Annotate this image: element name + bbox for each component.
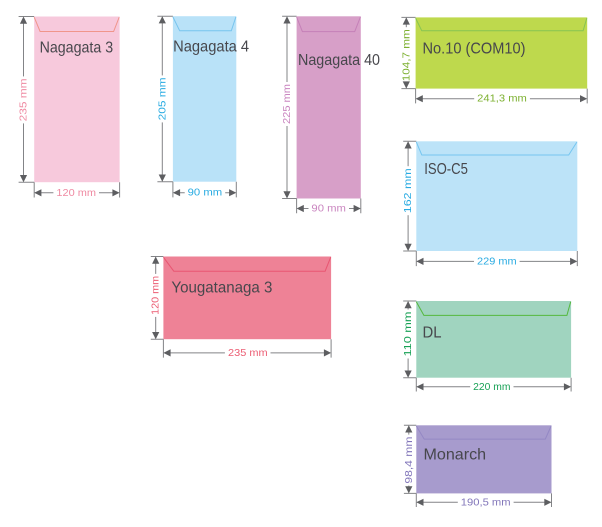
svg-text:Yougatanaga 3: Yougatanaga 3: [171, 280, 272, 297]
svg-text:190,5 mm: 190,5 mm: [461, 496, 511, 508]
svg-text:90 mm: 90 mm: [311, 203, 346, 215]
svg-text:120 mm: 120 mm: [56, 187, 96, 199]
svg-text:104,7 mm: 104,7 mm: [400, 29, 412, 81]
svg-text:229 mm: 229 mm: [477, 255, 517, 267]
svg-text:235 mm: 235 mm: [18, 78, 30, 121]
svg-text:225 mm: 225 mm: [281, 84, 293, 124]
svg-text:DL: DL: [423, 325, 442, 342]
svg-text:220 mm: 220 mm: [473, 381, 511, 393]
svg-text:98,4 mm: 98,4 mm: [403, 436, 415, 483]
svg-text:110 mm: 110 mm: [402, 311, 414, 356]
svg-text:ISO-C5: ISO-C5: [424, 161, 468, 178]
svg-text:162 mm: 162 mm: [402, 168, 414, 213]
svg-text:No.10 (COM10): No.10 (COM10): [423, 41, 526, 58]
svg-text:Monarch: Monarch: [424, 447, 487, 464]
svg-text:Nagagata 3: Nagagata 3: [40, 39, 114, 56]
svg-text:205 mm: 205 mm: [156, 77, 168, 120]
svg-text:120 mm: 120 mm: [150, 276, 162, 315]
svg-text:Nagagata 4: Nagagata 4: [173, 38, 249, 55]
svg-text:235 mm: 235 mm: [228, 347, 268, 359]
svg-text:90 mm: 90 mm: [188, 187, 223, 199]
svg-text:Nagagata 40: Nagagata 40: [298, 52, 380, 69]
svg-text:241,3 mm: 241,3 mm: [477, 93, 527, 105]
